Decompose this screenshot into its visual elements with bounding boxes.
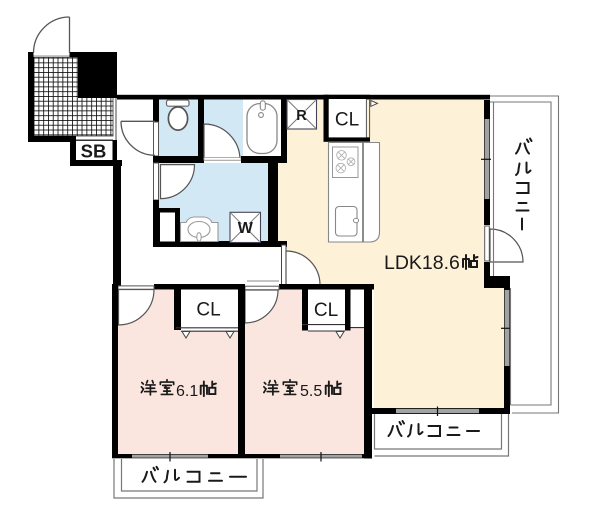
svg-text:LDK18.6: LDK18.6 [384, 252, 460, 274]
svg-text:CL: CL [196, 300, 220, 321]
svg-text:CL: CL [314, 300, 338, 321]
svg-text:6.1: 6.1 [176, 383, 198, 400]
svg-text:5.5: 5.5 [300, 383, 322, 400]
svg-text:SB: SB [81, 141, 107, 162]
svg-text:W: W [238, 220, 254, 237]
svg-text:CL: CL [335, 110, 359, 131]
svg-text:R: R [296, 108, 307, 124]
